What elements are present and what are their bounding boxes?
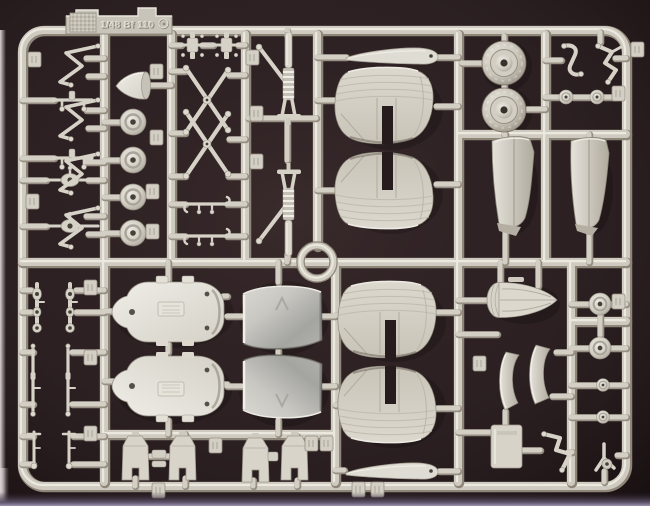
- kit-marking-text: 1/48 Bf 110: [101, 20, 155, 31]
- small-disc-2: [597, 411, 610, 424]
- hub-cap-2: [589, 337, 611, 359]
- photo-edge-left: [0, 30, 6, 506]
- wheel-hub-4: [120, 220, 146, 246]
- photo-edge-bottom: [0, 492, 650, 506]
- sprue-photo: 1/48 Bf 110 1/48 Bf 110 1/48 Bf 110: [0, 0, 650, 506]
- cowling-panel-1: [243, 286, 322, 349]
- wheel-hub-1: [120, 109, 146, 135]
- cowling-panel-2: [243, 355, 322, 418]
- small-clip-part-3: [268, 452, 278, 461]
- small-clip-part-1: [152, 450, 166, 458]
- cross-fitting-2: [214, 32, 240, 59]
- small-disc-1: [597, 379, 610, 392]
- tailplane-panel-1: [335, 67, 433, 144]
- pulley-disc-2: [590, 90, 604, 104]
- tyre-2: [482, 88, 526, 132]
- pulley-disc-1: [559, 90, 573, 104]
- sprue-photo-canvas: 1/48 Bf 110 1/48 Bf 110 1/48 Bf 110: [0, 0, 650, 506]
- wheel-hub-2: [120, 147, 146, 173]
- small-clip-part-2: [152, 461, 166, 467]
- cross-fitting-1: [180, 32, 206, 59]
- tailplane-panel-3: [338, 281, 436, 358]
- tailplane-panel-4: [338, 366, 436, 443]
- tyre-1: [482, 41, 526, 85]
- flat-plate-part: [491, 425, 522, 468]
- knurled-thumb-pad: [70, 13, 96, 32]
- wheel-hub-3: [120, 184, 146, 210]
- hub-cap-1: [589, 293, 611, 315]
- tailplane-panel-2: [335, 152, 433, 229]
